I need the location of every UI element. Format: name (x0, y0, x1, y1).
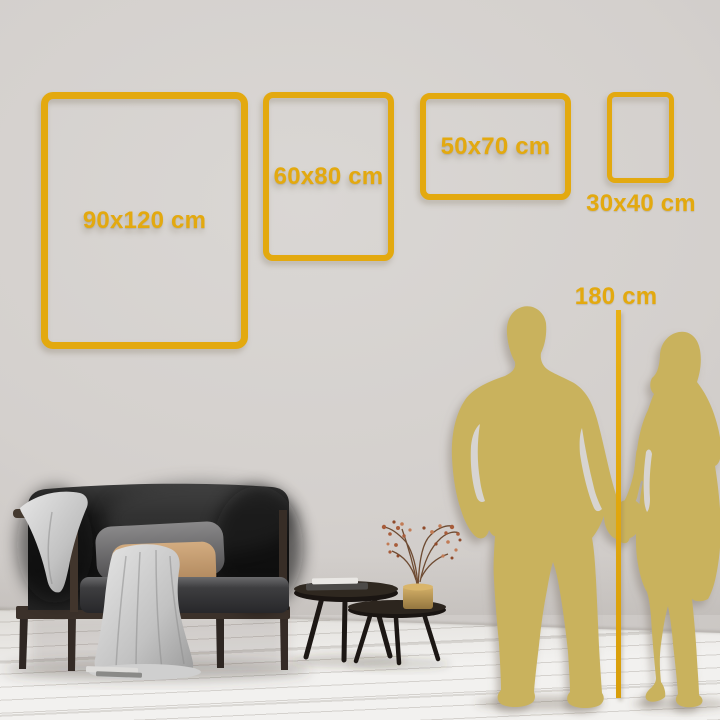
man-silhouette (452, 306, 630, 708)
couple-silhouettes (0, 0, 720, 720)
height-measure-line (616, 310, 621, 698)
size-guide-scene: 90x120 cm 60x80 cm 50x70 cm (0, 0, 720, 720)
